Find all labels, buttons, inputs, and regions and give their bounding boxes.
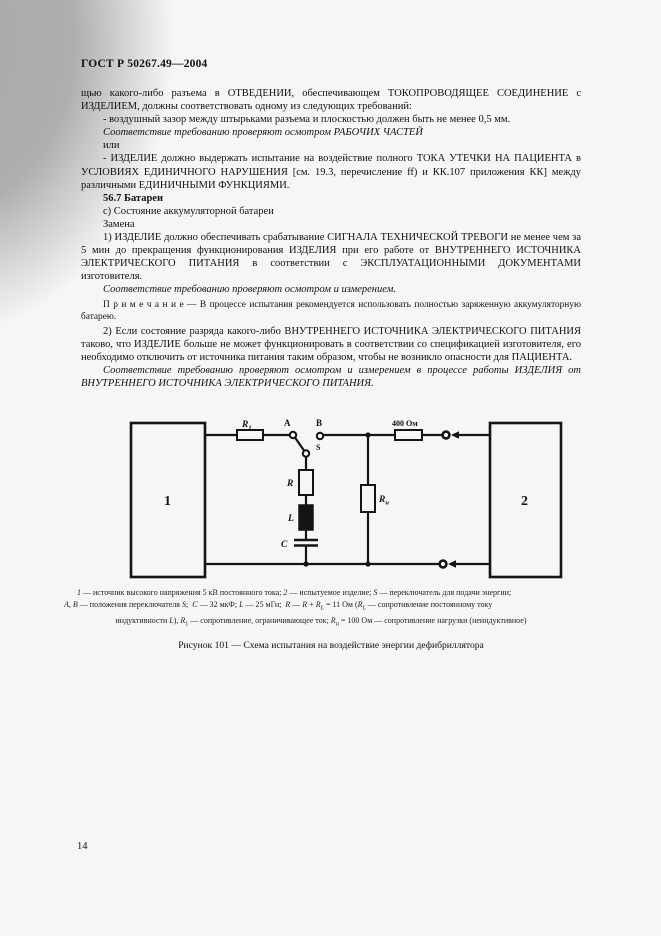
legend-line-2: A, B — положения переключателя S; C — 32… [64,599,578,615]
defibrillator-test-circuit: 1 2 R1 A B S 400 Ом R L [128,416,568,582]
document-header: ГОСТ Р 50267.49—2004 [81,58,581,70]
resistor-r1-label: R1 [241,420,252,432]
connector-arrow-bottom [448,560,456,568]
contact-b-label: B [316,418,322,428]
connector-circle-bottom [440,561,447,568]
capacitor-c-label: C [281,540,288,550]
contact-a-label: A [284,418,291,428]
switch-pole [303,450,309,456]
paragraph: 56.7 Батареи [81,192,581,205]
load-resistor-rn-label: Rн [378,495,389,507]
figure-caption: Рисунок 101 — Схема испытания на воздейс… [81,640,581,651]
switch-contact-a [290,432,296,438]
load-resistor-rn [361,485,375,512]
paragraph: П р и м е ч а н и е — В процессе испытан… [81,299,581,323]
scanned-document-page: { "page": { "header": "ГОСТ Р 50267.49—2… [0,0,661,936]
page-number: 14 [77,841,88,852]
paragraph: Соответствие требованию проверяют осмотр… [81,364,581,390]
paragraph: щью какого-либо разъема в ОТВЕДЕНИИ, обе… [81,87,581,113]
figure-101-circuit-diagram: 1 2 R1 A B S 400 Ом R L [128,416,568,582]
switch-contact-b [317,433,323,439]
resistor-400ohm [395,430,422,440]
hv-source-label: 1 [164,494,171,509]
junction-dot-bottom-2 [365,561,370,566]
legend-line-1: 1 — источник высокого напряжения 5 кВ по… [64,587,578,599]
figure-legend: 1 — источник высокого напряжения 5 кВ по… [64,587,578,631]
switch-s-label: S [316,443,321,452]
resistor-r1 [237,430,263,440]
paragraph: Замена [81,218,581,231]
inductor-l [299,505,313,530]
legend-line-3: индуктивности L), R1 — сопротивление, ог… [64,615,578,631]
inductor-l-label: L [287,514,294,524]
resistor-r [299,470,313,495]
junction-dot-bottom-1 [303,561,308,566]
paragraph: с) Состояние аккумуляторной батареи [81,205,581,218]
paragraph: - ИЗДЕЛИЕ должно выдержать испытание на … [81,152,581,191]
paragraph: 2) Если состояние разряда какого-либо ВН… [81,325,581,364]
resistor-400ohm-label: 400 Ом [392,419,418,428]
device-under-test-label: 2 [521,494,528,509]
switch-blade [295,438,304,451]
body-text: щью какого-либо разъема в ОТВЕДЕНИИ, обе… [81,87,581,390]
paragraph: - воздушный зазор между штырьками разъем… [81,113,581,126]
paragraph: или [81,139,581,152]
paragraph: Соответствие требованию проверяют осмотр… [81,126,581,139]
connector-circle-top [443,432,450,439]
paragraph: 1) ИЗДЕЛИЕ должно обеспечивать срабатыва… [81,231,581,283]
paragraph: Соответствие требованию проверяют осмотр… [81,283,581,296]
resistor-r-label: R [286,479,293,489]
connector-arrow-top [451,431,459,439]
